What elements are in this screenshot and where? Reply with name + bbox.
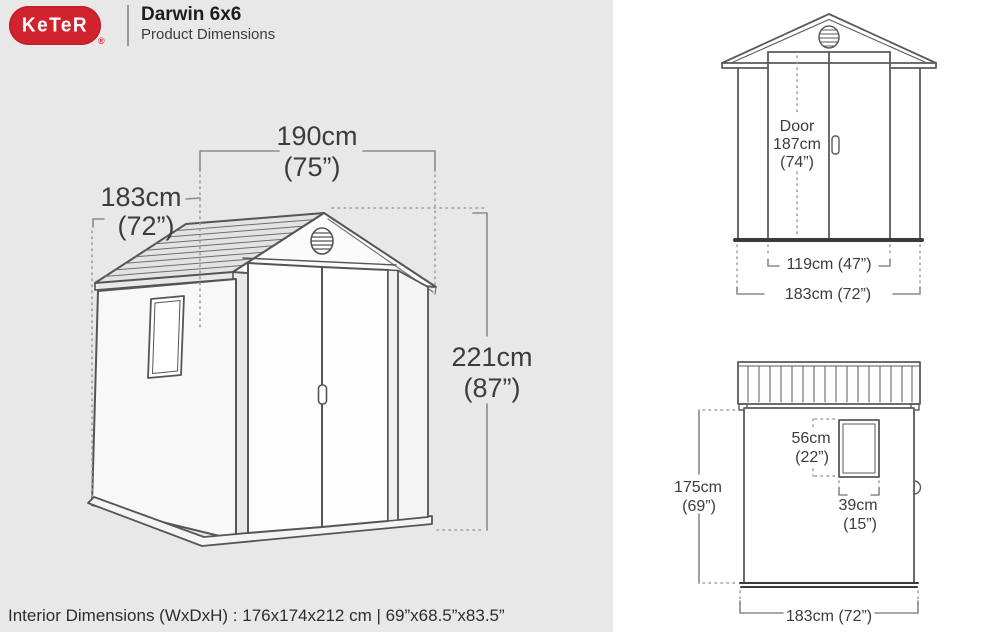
front-walls: [738, 52, 920, 240]
front-door-width-label: 119cm (47”): [786, 256, 871, 274]
keter-logo-text: KeTeR: [22, 14, 88, 37]
main-width-cm-label: 190cm: [276, 121, 357, 152]
left-panel: KeTeR ® Darwin 6x6 Product Dimensions: [0, 0, 613, 632]
front-door-handle-icon: [832, 136, 839, 154]
interior-dimensions-text: Interior Dimensions (WxDxH) : 176x174x21…: [8, 606, 505, 626]
keter-logo: KeTeR: [9, 6, 101, 45]
page-title: Darwin 6x6: [141, 4, 241, 26]
side-door-handle-icon: [914, 481, 921, 494]
main-depth-in-label: (72”): [117, 211, 174, 242]
roof-vent-icon: [311, 228, 333, 254]
door-right: [322, 267, 388, 527]
header-divider: [127, 5, 129, 46]
front-total-width-label: 183cm (72”): [785, 286, 871, 304]
side-window: [839, 420, 879, 477]
main-height-in-label: (87”): [463, 373, 520, 404]
door-height-cm: 187cm: [773, 136, 821, 154]
front-roof-vent-icon: [819, 26, 839, 48]
door-dimension-label: Door 187cm (74”): [773, 118, 821, 172]
side-height-in-label: (69”): [682, 498, 716, 516]
right-corner-wall: [398, 271, 428, 521]
side-width-label: 183cm (72”): [786, 608, 872, 626]
window-width-in-label: (15”): [843, 516, 877, 534]
main-width-in-label: (75”): [283, 152, 340, 183]
window-height-in-label: (22”): [795, 449, 829, 467]
door-label: Door: [773, 118, 821, 136]
page-subtitle: Product Dimensions: [141, 26, 275, 43]
side-window: [148, 296, 184, 378]
product-dimensions-sheet: KeTeR ® Darwin 6x6 Product Dimensions: [0, 0, 1000, 632]
main-height-cm-label: 221cm: [451, 342, 532, 373]
door-jamb: [388, 270, 398, 521]
window-width-cm-label: 39cm: [838, 497, 877, 515]
door-left: [248, 263, 322, 533]
registered-mark: ®: [98, 36, 105, 46]
main-depth-cm-label: 183cm: [100, 182, 181, 213]
side-height-cm-label: 175cm: [674, 479, 722, 497]
side-roof-band: [738, 362, 920, 410]
door-handle-icon: [319, 385, 327, 404]
window-height-cm-label: 56cm: [791, 430, 830, 448]
side-base-line: [740, 583, 918, 587]
door-height-in: (74”): [773, 154, 821, 172]
